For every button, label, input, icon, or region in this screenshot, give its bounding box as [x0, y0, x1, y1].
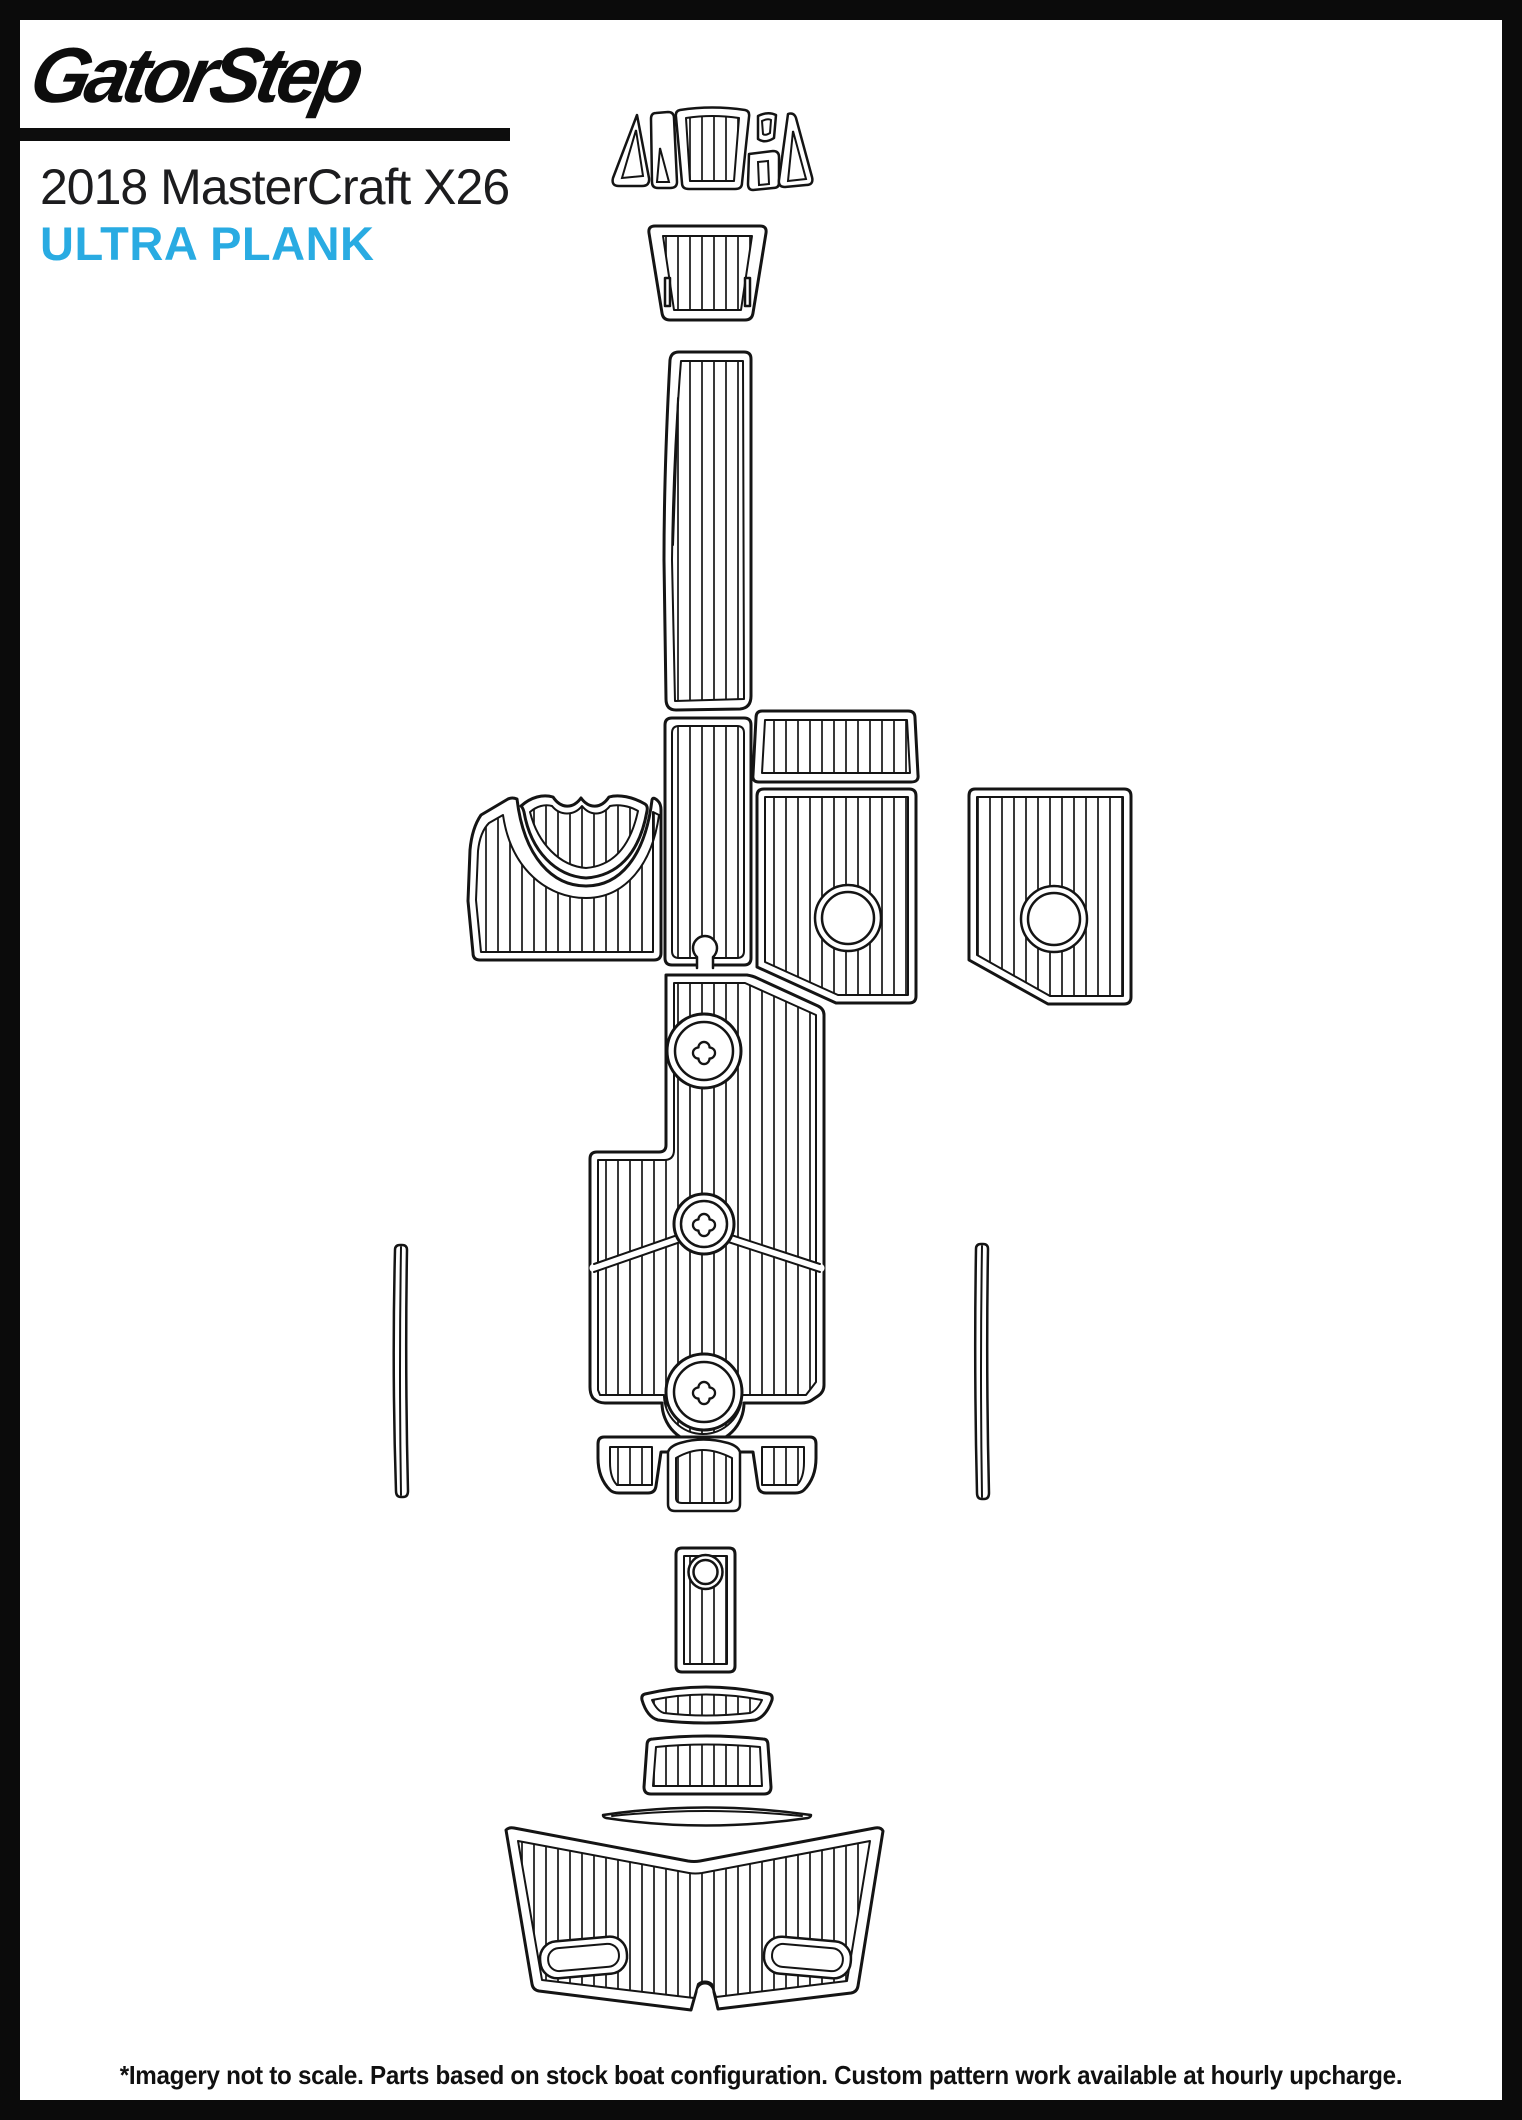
platform-handle-left — [539, 1935, 629, 1979]
part-pylon-ring-pad-middle — [674, 1194, 734, 1254]
part-rear-bench-pad — [598, 1437, 816, 1511]
part-pylon-ring-pad-top — [667, 1014, 741, 1088]
bow-filler-center-pad — [676, 108, 749, 190]
part-bow-filler-set — [613, 108, 813, 191]
bow-filler-left-strip — [651, 112, 677, 188]
part-transom-trim-strip — [603, 1808, 811, 1826]
parts-diagram — [0, 0, 1522, 2120]
part-transom-step-pad — [676, 1548, 735, 1672]
part-side-trim-strip-right — [975, 1244, 989, 1499]
page-title: 2018 MasterCraft X26 — [40, 158, 509, 216]
part-starboard-side-deck-pad — [969, 789, 1131, 1004]
part-transom-arc-pad — [642, 1687, 772, 1723]
keyhole-cutout — [693, 936, 717, 968]
part-swim-platform-pad — [506, 1828, 883, 2010]
logo-underline-bar — [20, 128, 510, 141]
bow-filler-right-small-bottom — [748, 151, 779, 190]
disclaimer-text: *Imagery not to scale. Parts based on st… — [72, 2060, 1450, 2091]
part-bow-walkway-runner — [664, 352, 751, 710]
gatorstep-template-page: GatorStep 2018 MasterCraft X26 ULTRA PLA… — [0, 0, 1522, 2120]
part-starboard-observer-pad — [757, 789, 916, 1003]
bow-filler-right-wedge — [779, 114, 813, 188]
part-transom-wedge-pad — [644, 1736, 771, 1794]
platform-handle-right — [763, 1935, 853, 1979]
bow-filler-left-wedge — [613, 115, 650, 186]
part-starboard-upper-deck-pad — [753, 711, 918, 782]
brand-logo: GatorStep — [23, 30, 368, 121]
part-side-trim-strip-left — [394, 1245, 408, 1497]
bow-filler-right-small-top — [758, 113, 776, 141]
part-pylon-ring-pad-bottom — [666, 1354, 742, 1430]
product-line-label: ULTRA PLANK — [40, 216, 374, 271]
part-mid-walkway-runner — [665, 718, 751, 968]
part-bow-step-pad — [649, 226, 766, 320]
